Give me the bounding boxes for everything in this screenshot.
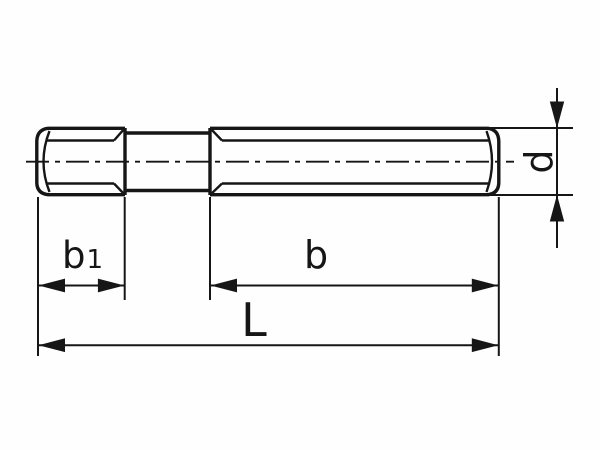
label-b1-subscript: 1 (87, 245, 104, 275)
dimension-label-b: b (304, 233, 328, 277)
stud-bolt-drawing: b1 b L d (0, 0, 600, 450)
arrowhead-icon (39, 279, 66, 293)
label-b1-main: b (62, 234, 86, 277)
arrowhead-icon (472, 279, 499, 293)
dimension-label-diameter: d (517, 149, 561, 173)
arrowhead-icon (211, 279, 238, 293)
dimension-length: L (38, 293, 499, 352)
technical-drawing-canvas: b1 b L d (0, 0, 600, 450)
arrowhead-icon (98, 279, 125, 293)
arrowhead-icon (550, 195, 564, 222)
dimension-label-b1: b1 (62, 234, 103, 277)
arrowhead-icon (39, 338, 66, 352)
arrowhead-icon (472, 338, 499, 352)
dimension-b: b (210, 233, 499, 292)
dimension-label-length: L (241, 293, 267, 347)
extension-lines (38, 197, 499, 356)
dimension-b1: b1 (38, 234, 125, 292)
arrowhead-icon (550, 102, 564, 129)
